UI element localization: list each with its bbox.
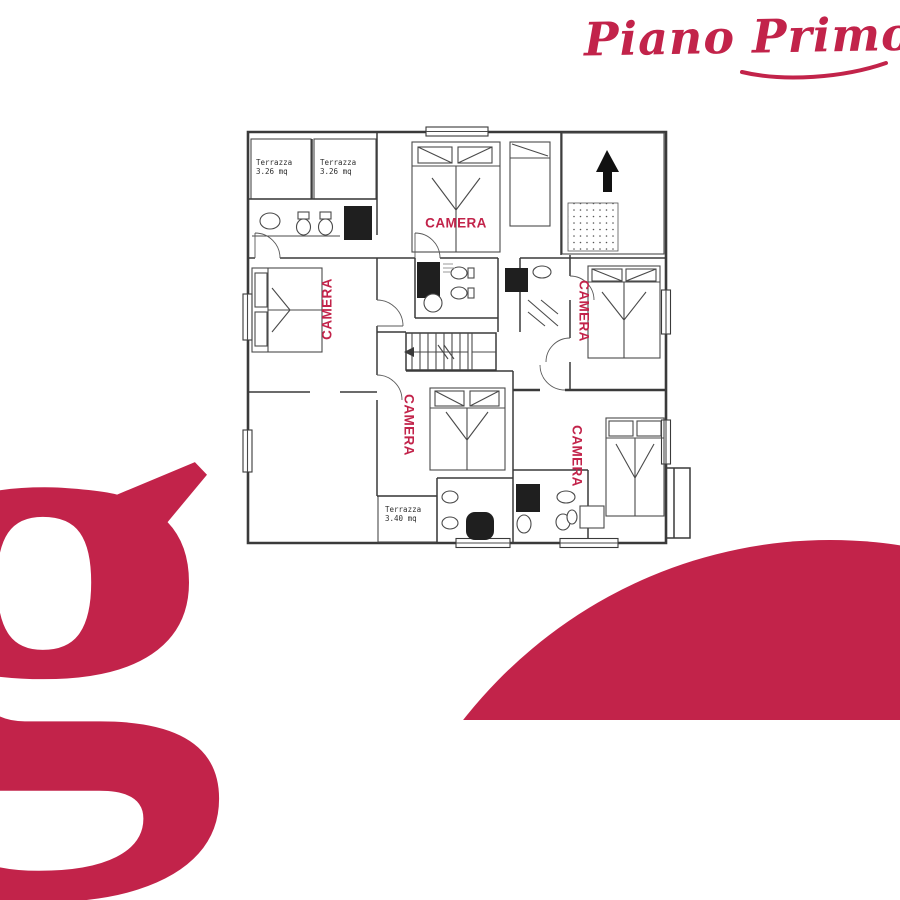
bed-bottom-right xyxy=(606,418,664,516)
bidet xyxy=(319,219,333,235)
terrace-area: 3.40 mq xyxy=(385,514,417,523)
shower-hatch xyxy=(528,300,558,326)
terrace-areas xyxy=(251,133,664,542)
bed-right xyxy=(588,266,660,358)
bed-top-single xyxy=(510,142,550,226)
shower-dark-1 xyxy=(344,206,372,240)
north-arrow-icon xyxy=(596,150,619,192)
terrace-name: Terrazza xyxy=(320,158,356,167)
terrace-label-2: Terrazza 3.26 mq xyxy=(318,157,358,177)
sink xyxy=(260,213,280,229)
shower-dark-3 xyxy=(505,268,528,292)
room-label-camera-bottom-right: CAMERA xyxy=(570,425,585,487)
desk xyxy=(580,506,604,528)
room-label-camera-bottom-center: CAMERA xyxy=(402,394,417,456)
shower-dark-4 xyxy=(516,484,540,512)
room-label-camera-left: CAMERA xyxy=(320,278,335,340)
staircase xyxy=(404,333,496,370)
sink xyxy=(533,266,551,278)
shower-dark-2 xyxy=(417,262,440,298)
bidet xyxy=(451,287,467,299)
bed-bottom-center xyxy=(430,388,505,470)
chair xyxy=(567,510,577,524)
sink xyxy=(442,491,458,503)
toilet xyxy=(297,219,311,235)
terrace-name: Terrazza xyxy=(256,158,292,167)
toilet xyxy=(442,517,458,529)
bed-left xyxy=(252,268,322,352)
terrace-label-1: Terrazza 3.26 mq xyxy=(254,157,294,177)
shower-dark-5 xyxy=(466,512,494,540)
floor-plan-drawing xyxy=(0,0,900,720)
terrace-label-3: Terrazza 3.40 mq xyxy=(383,504,423,524)
toilet xyxy=(517,515,531,533)
toilet xyxy=(451,267,467,279)
terrace-skylight-dots xyxy=(568,203,618,251)
title-underline-swash xyxy=(738,58,890,84)
terrace-name: Terrazza xyxy=(385,505,421,514)
room-label-camera-top: CAMERA xyxy=(425,216,487,231)
terrace-area: 3.26 mq xyxy=(320,167,352,176)
room-label-camera-right: CAMERA xyxy=(577,280,592,342)
terrace-area: 3.26 mq xyxy=(256,167,288,176)
bathroom-fixtures xyxy=(252,206,604,540)
sink xyxy=(557,491,575,503)
sink xyxy=(424,294,442,312)
